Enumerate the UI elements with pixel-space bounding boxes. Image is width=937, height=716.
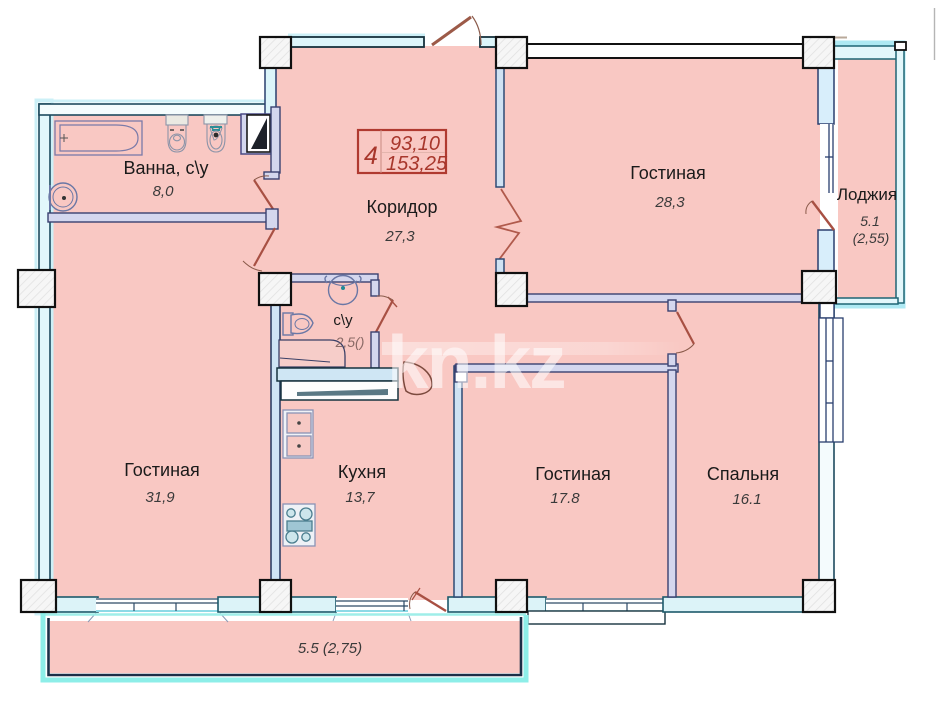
svg-text:Коридор: Коридор bbox=[366, 197, 437, 217]
svg-text:17.8: 17.8 bbox=[550, 490, 580, 507]
svg-text:27,3: 27,3 bbox=[384, 228, 415, 245]
svg-text:kn.kz: kn.kz bbox=[387, 320, 565, 404]
svg-text:Гостиная: Гостиная bbox=[630, 163, 706, 183]
svg-text:2,5(): 2,5() bbox=[335, 334, 365, 350]
svg-text:Кухня: Кухня bbox=[338, 462, 386, 482]
svg-text:13,7: 13,7 bbox=[345, 489, 375, 506]
svg-text:5.5 (2,75): 5.5 (2,75) bbox=[298, 640, 362, 657]
svg-text:93,10: 93,10 bbox=[390, 133, 440, 155]
svg-text:153,25: 153,25 bbox=[386, 153, 448, 175]
svg-text:31,9: 31,9 bbox=[145, 489, 175, 506]
svg-text:8,0: 8,0 bbox=[153, 183, 175, 200]
svg-text:Гостиная: Гостиная bbox=[124, 460, 200, 480]
svg-text:Гостиная: Гостиная bbox=[535, 464, 611, 484]
svg-text:Спальня: Спальня bbox=[707, 464, 779, 484]
svg-text:с\у: с\у bbox=[333, 312, 353, 329]
svg-text:5.1: 5.1 bbox=[860, 213, 879, 229]
svg-text:Ванна, с\у: Ванна, с\у bbox=[124, 158, 209, 178]
svg-text:Лоджия: Лоджия bbox=[837, 185, 897, 204]
svg-text:28,3: 28,3 bbox=[654, 194, 685, 211]
svg-text:(2,55): (2,55) bbox=[853, 230, 890, 246]
svg-text:4: 4 bbox=[364, 142, 378, 170]
svg-text:16.1: 16.1 bbox=[732, 491, 761, 508]
